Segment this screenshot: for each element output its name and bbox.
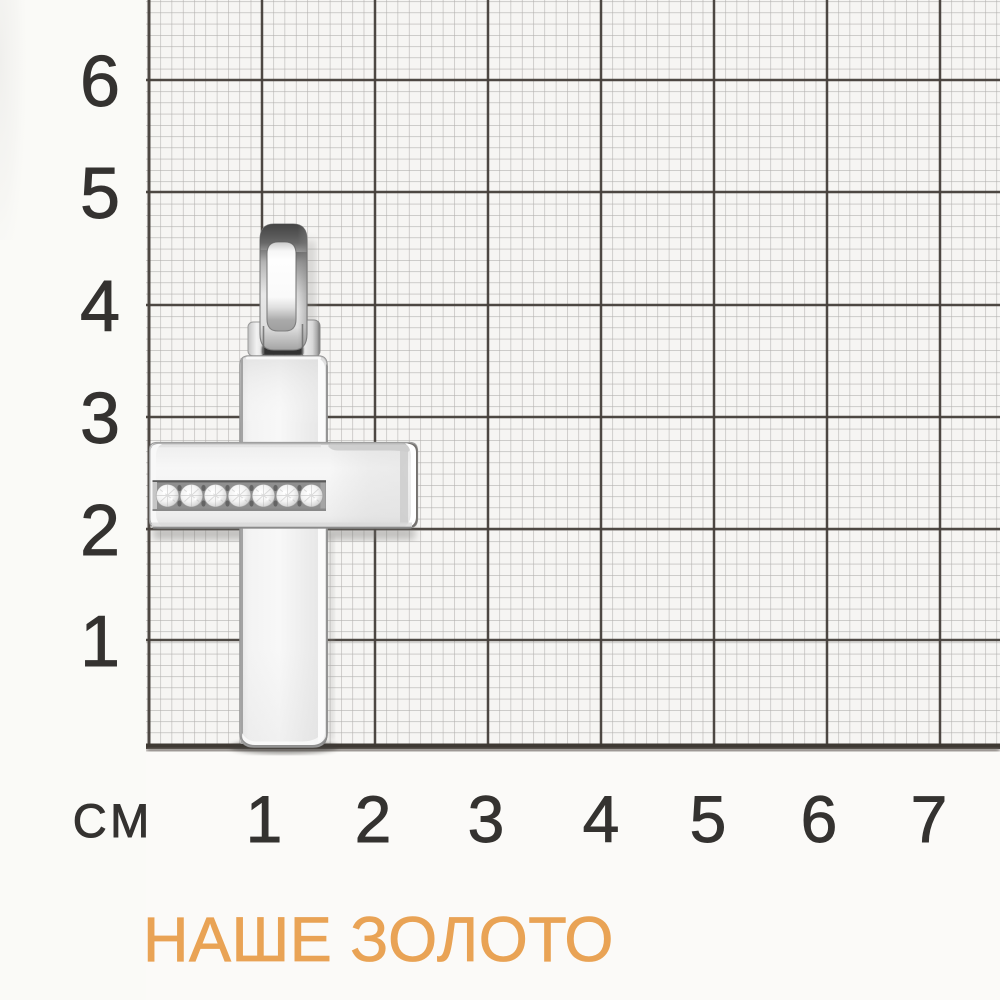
svg-text:2: 2 bbox=[355, 782, 392, 856]
svg-text:НАШЕ ЗОЛОТО: НАШЕ ЗОЛОТО bbox=[143, 905, 614, 975]
svg-text:СМ: СМ bbox=[73, 794, 154, 847]
svg-text:1: 1 bbox=[246, 782, 283, 856]
svg-text:5: 5 bbox=[80, 154, 120, 234]
svg-text:2: 2 bbox=[80, 491, 120, 571]
svg-text:3: 3 bbox=[468, 782, 505, 856]
svg-text:6: 6 bbox=[801, 782, 838, 856]
svg-text:5: 5 bbox=[690, 782, 727, 856]
svg-text:4: 4 bbox=[583, 782, 620, 856]
svg-text:4: 4 bbox=[80, 267, 120, 347]
svg-text:6: 6 bbox=[80, 42, 120, 122]
svg-text:3: 3 bbox=[80, 379, 120, 459]
svg-text:1: 1 bbox=[80, 602, 120, 682]
svg-text:7: 7 bbox=[911, 782, 948, 856]
